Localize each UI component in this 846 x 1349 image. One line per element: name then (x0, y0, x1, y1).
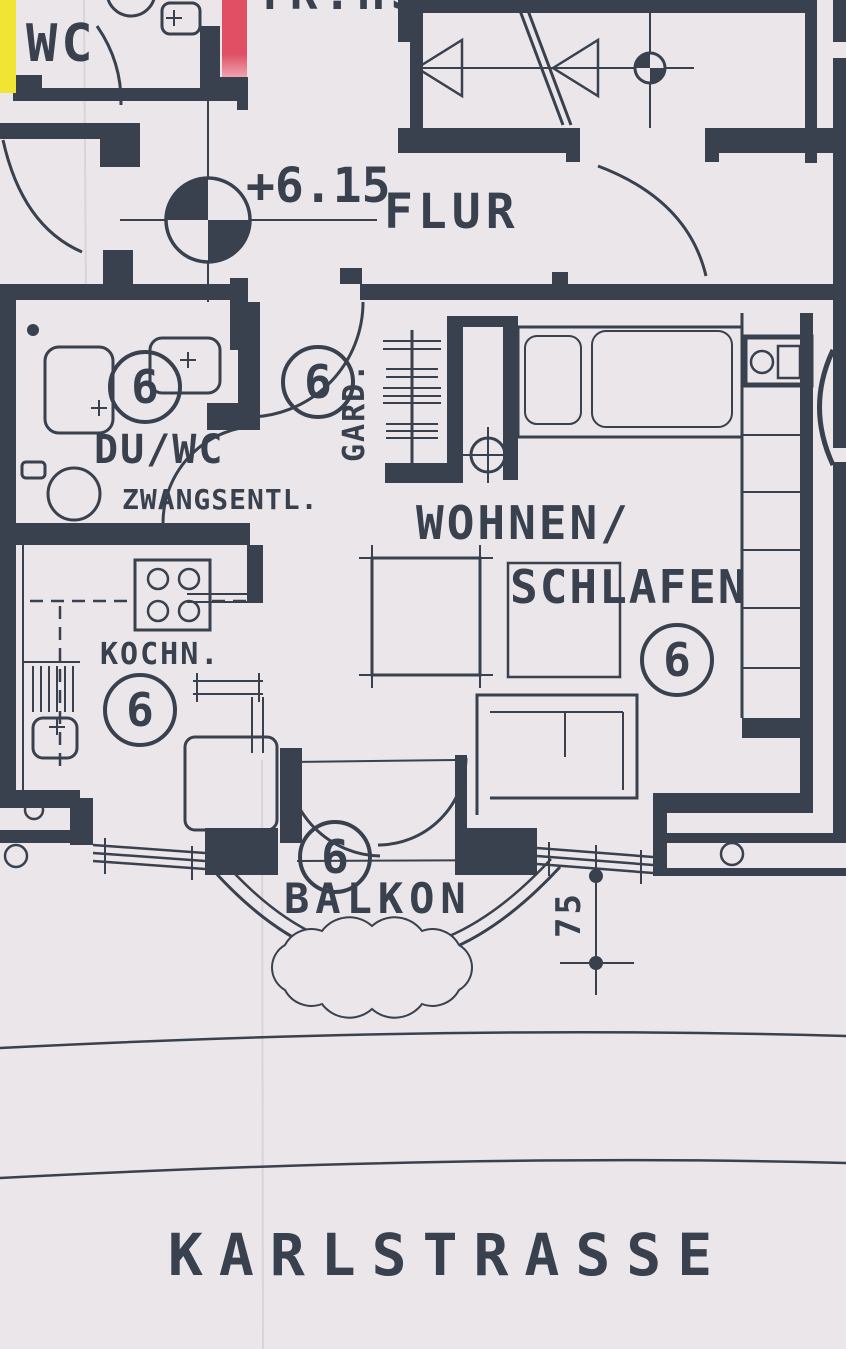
pillow (592, 331, 732, 427)
unit-number-badge-bath: 6 (108, 350, 182, 424)
stair-direction-arrows (417, 40, 637, 96)
hall-label: FLUR (384, 188, 520, 236)
unit-number-badge-living: 6 (640, 623, 714, 697)
highlight-red (222, 0, 247, 77)
pillow (525, 336, 581, 424)
shower-wc-note-label: ZWANGSENTL. (122, 486, 318, 514)
bench (193, 673, 263, 753)
unit-number: 6 (321, 830, 349, 884)
wc-sink-icon (162, 3, 200, 34)
kitchen-label: KOCHN. (100, 640, 220, 670)
unit-number: 6 (131, 360, 159, 414)
french-door-arc (378, 758, 466, 845)
closet-shelves (742, 435, 800, 668)
unit-number: 6 (126, 683, 154, 737)
unit-number-badge-kitchen: 6 (103, 673, 177, 747)
fridge-hatch-icon (23, 662, 80, 712)
shower-wc-label: DU/WC (94, 430, 224, 470)
door-pivot (27, 324, 39, 336)
door-swing-arc (598, 166, 706, 276)
door-swing-arc (3, 140, 82, 252)
wc-label: WC (26, 18, 97, 70)
stairwell-label: TR.HS (256, 0, 424, 16)
living-label-line1: WOHNEN/ (416, 500, 631, 546)
living-label-line2: SCHLAFEN (510, 564, 748, 610)
street-label: KARLSTRASSE (168, 1226, 728, 1284)
sofa (477, 695, 637, 815)
floor-level-label: +6.15 (246, 162, 391, 210)
kitchen-sink-icon (33, 718, 77, 758)
neighbor-fixture-arc (820, 350, 834, 465)
balcony-dimension-label: 75 (552, 891, 586, 938)
unit-number-badge-balcony: 6 (298, 820, 372, 894)
unit-number: 6 (663, 633, 691, 687)
facade-column (5, 845, 27, 867)
unit-number-badge-entry: 6 (281, 345, 355, 419)
appliance-square (778, 346, 800, 378)
window (93, 838, 205, 880)
plant-icon (272, 917, 472, 1017)
wardrobe-rack-icon (383, 330, 441, 472)
survey-point-icon (620, 13, 694, 128)
floorplan-page: TR.HS WC +6.15 FLUR DU/WC ZWANGSENTL. GA… (0, 0, 846, 1349)
wall-port-circle (721, 843, 743, 865)
unit-number: 6 (304, 355, 332, 409)
toilet-icon (22, 462, 100, 520)
living-table (359, 545, 493, 688)
highlight-yellow (0, 0, 16, 93)
appliance-circle (751, 351, 773, 373)
street-lines (0, 1032, 846, 1178)
stairwell-area (398, 0, 846, 163)
cropped-unit-badge (107, 0, 155, 16)
door-threshold (292, 760, 455, 762)
shower-icon (45, 347, 113, 433)
bed (518, 327, 742, 437)
